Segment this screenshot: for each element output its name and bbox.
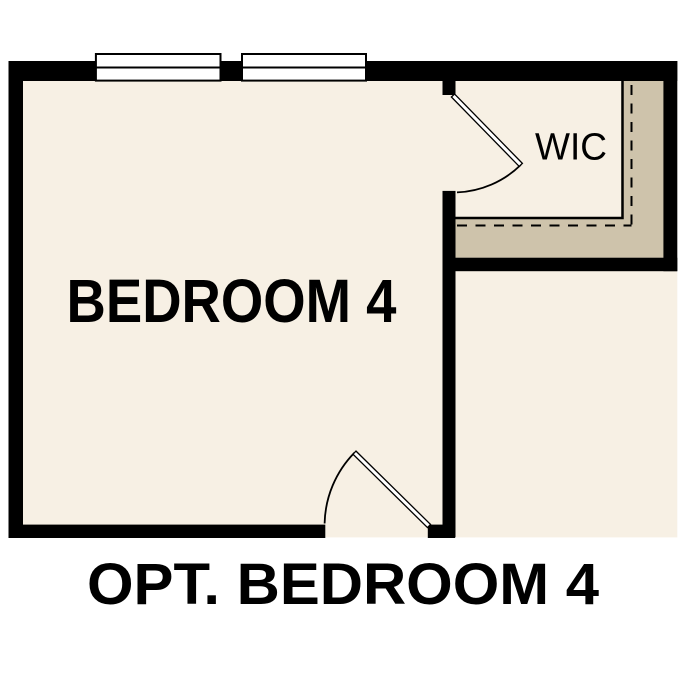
svg-text:WIC: WIC [535, 127, 607, 169]
svg-text:OPT. BEDROOM 4: OPT. BEDROOM 4 [87, 552, 599, 617]
svg-text:BEDROOM 4: BEDROOM 4 [67, 267, 397, 335]
